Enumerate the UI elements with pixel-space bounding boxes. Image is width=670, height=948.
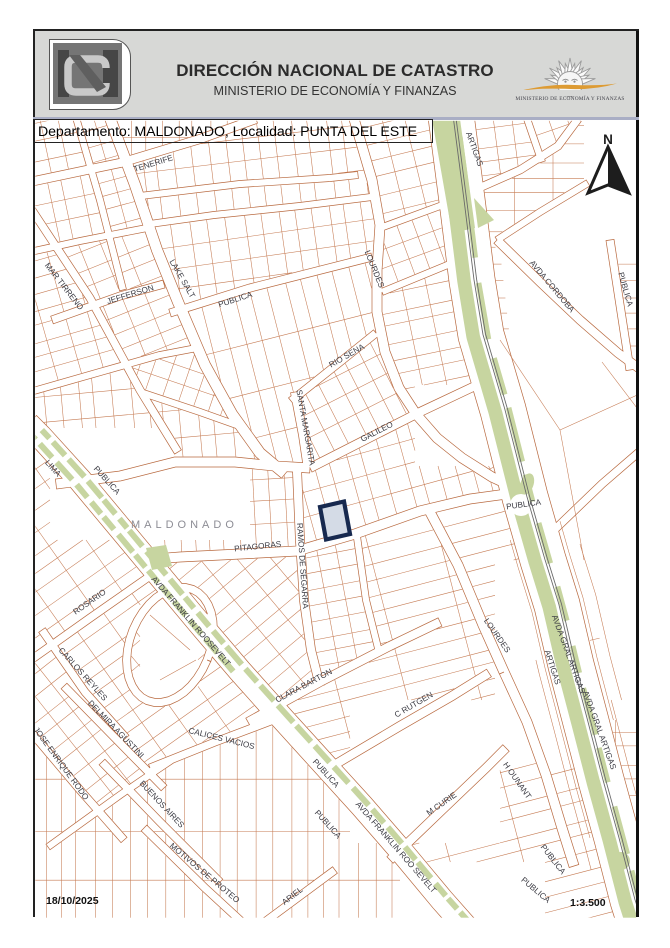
- svg-text:18/10/2025: 18/10/2025: [46, 895, 99, 907]
- svg-text:MALDONADO: MALDONADO: [131, 519, 238, 531]
- svg-text:MINISTERIO DE ECONOMÍA Y FINAN: MINISTERIO DE ECONOMÍA Y FINANZAS: [515, 94, 624, 102]
- svg-text:1:3.500: 1:3.500: [570, 897, 606, 909]
- svg-text:N: N: [603, 132, 613, 147]
